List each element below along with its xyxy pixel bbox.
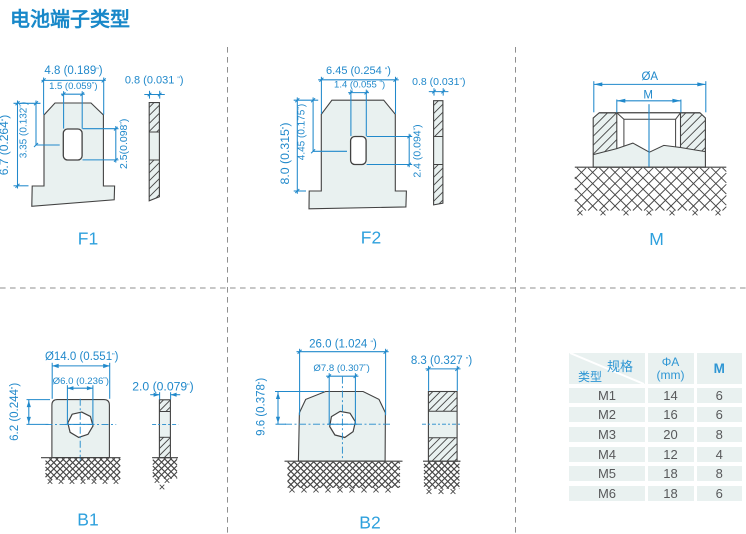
svg-text:Ø14.0 (0.551"): Ø14.0 (0.551") xyxy=(45,351,119,363)
svg-text:Ø7.8 (0.307"): Ø7.8 (0.307") xyxy=(313,363,369,374)
svg-text:26.0 (1.024 "): 26.0 (1.024 ") xyxy=(309,338,377,350)
svg-text:B1: B1 xyxy=(77,510,98,530)
svg-text:2.0 (0.079"): 2.0 (0.079") xyxy=(132,379,193,393)
svg-text:8.0 (0.315"): 8.0 (0.315") xyxy=(278,123,292,185)
svg-text:6.7 (0.264"): 6.7 (0.264") xyxy=(0,115,11,176)
svg-text:0.8 (0.031 "): 0.8 (0.031 ") xyxy=(125,75,184,87)
svg-text:ØA: ØA xyxy=(641,71,658,83)
svg-text:B2: B2 xyxy=(359,513,380,533)
svg-text:F2: F2 xyxy=(361,228,381,248)
svg-text:4.45 (0.175"): 4.45 (0.175") xyxy=(296,104,307,160)
svg-text:9.6 (0.378"): 9.6 (0.378") xyxy=(256,378,268,436)
svg-text:2.5(0.098"): 2.5(0.098") xyxy=(118,119,130,169)
svg-text:0.8 (0.031"): 0.8 (0.031") xyxy=(412,76,465,88)
svg-text:M: M xyxy=(649,229,664,249)
svg-text:4.8 (0.189"): 4.8 (0.189") xyxy=(44,65,102,77)
svg-text:1.5 (0.059"): 1.5 (0.059") xyxy=(49,81,97,92)
svg-text:6.45 (0.254 "): 6.45 (0.254 ") xyxy=(326,65,391,77)
svg-text:Ø6.0 (0.236"): Ø6.0 (0.236") xyxy=(53,376,109,387)
svg-text:M: M xyxy=(643,89,653,101)
svg-text:6.2 (0.244"): 6.2 (0.244") xyxy=(9,383,21,441)
svg-text:8.3 (0.327 "): 8.3 (0.327 ") xyxy=(411,355,472,367)
svg-text:2.4 (0.094"): 2.4 (0.094") xyxy=(411,124,423,177)
svg-text:1.4 (0.055 "): 1.4 (0.055 ") xyxy=(334,79,385,90)
svg-text:3.35 (0.132"): 3.35 (0.132") xyxy=(18,102,29,158)
svg-text:F1: F1 xyxy=(78,229,98,249)
